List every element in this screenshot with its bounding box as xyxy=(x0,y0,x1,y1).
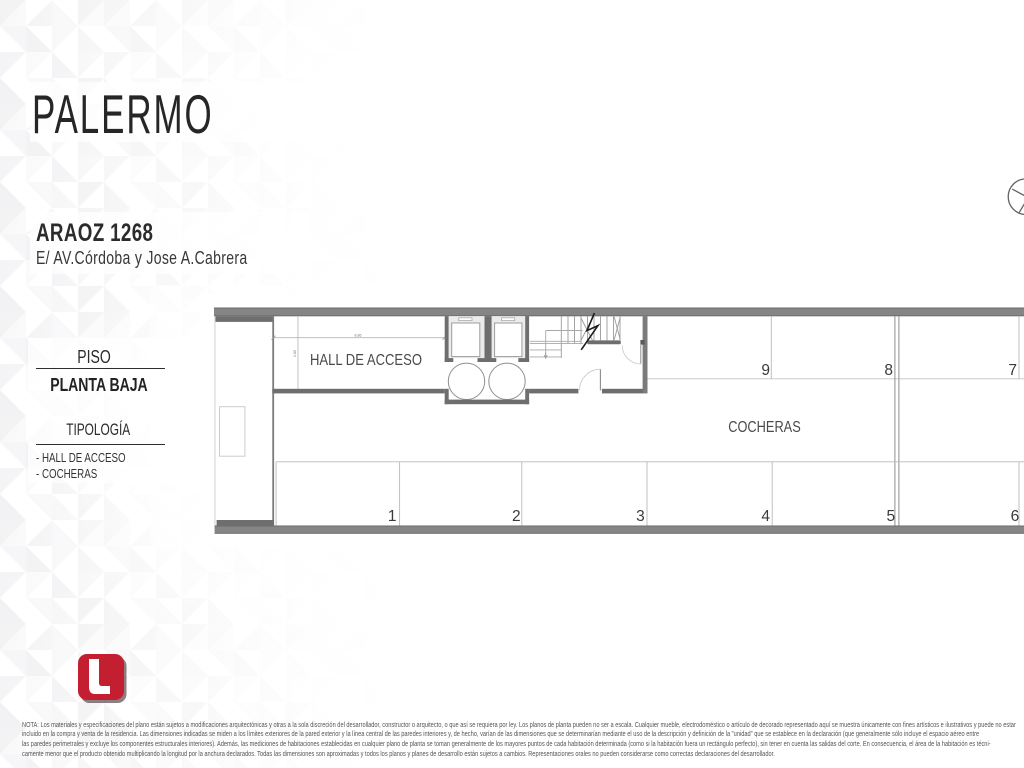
svg-text:5: 5 xyxy=(886,508,895,525)
svg-text:3: 3 xyxy=(636,508,645,525)
svg-text:8: 8 xyxy=(884,362,893,379)
svg-text:8.86: 8.86 xyxy=(355,333,362,337)
svg-text:2: 2 xyxy=(512,508,521,525)
svg-text:6: 6 xyxy=(1011,508,1020,525)
svg-text:9: 9 xyxy=(761,362,770,379)
svg-text:1: 1 xyxy=(388,508,397,525)
svg-text:COCHERAS: COCHERAS xyxy=(728,419,801,436)
svg-text:4: 4 xyxy=(761,508,770,525)
svg-text:HALL DE ACCESO: HALL DE ACCESO xyxy=(310,352,422,369)
svg-text:2.80: 2.80 xyxy=(293,350,297,357)
svg-text:7: 7 xyxy=(1008,362,1017,379)
